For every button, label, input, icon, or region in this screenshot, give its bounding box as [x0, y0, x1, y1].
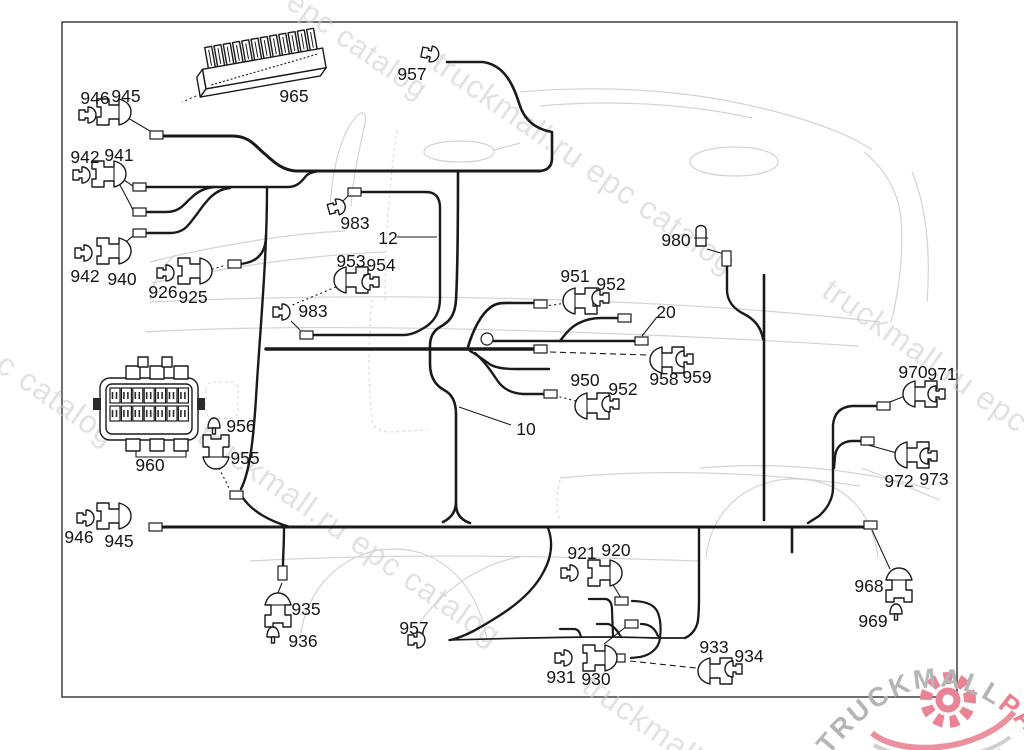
- part-callout: 957: [397, 64, 426, 84]
- part-callout: 942: [70, 266, 99, 286]
- part-callout: 958: [649, 369, 678, 389]
- part-callout: 951: [560, 266, 589, 286]
- part-callout: 980: [661, 230, 690, 250]
- harness-wires: [146, 62, 879, 658]
- connector-940: [97, 238, 131, 264]
- part-callout: 926: [148, 282, 177, 302]
- part-callout: 921: [567, 543, 596, 563]
- connector-935: [265, 593, 291, 627]
- part-callout: 10: [516, 419, 536, 439]
- part-callout: 956: [226, 416, 255, 436]
- connector-920: [588, 560, 622, 586]
- grommet-936-icon: [267, 627, 279, 643]
- part-callout: 946: [80, 88, 109, 108]
- connector-959-icon: [676, 351, 693, 367]
- connector-930: [583, 645, 617, 671]
- part-callout: 971: [927, 364, 956, 384]
- part-callout: 952: [596, 274, 625, 294]
- part-callout: 959: [682, 367, 711, 387]
- callouts-layer: 9469459429419429409269259659579831295395…: [64, 64, 956, 689]
- connector-925: [178, 258, 212, 284]
- part-callout: 983: [298, 301, 327, 321]
- part-callout: 969: [858, 611, 887, 631]
- grommet-969-icon: [890, 604, 902, 620]
- part-callout: 970: [898, 362, 927, 382]
- connector-983-bottom-icon: [273, 304, 290, 320]
- part-callout: 950: [570, 370, 599, 390]
- connector-968: [886, 568, 912, 602]
- part-callout: 953: [336, 251, 365, 271]
- part-callout: 960: [135, 455, 164, 475]
- connector-942-icon: [73, 167, 90, 183]
- connector-954-icon: [362, 274, 379, 290]
- part-callout: 20: [656, 302, 676, 322]
- part-callout: 954: [366, 255, 395, 275]
- part-callout: 930: [581, 669, 610, 689]
- part-callout: 968: [854, 576, 883, 596]
- connector-931-icon: [555, 650, 572, 666]
- connector-946-icon: [79, 107, 96, 123]
- part-callout: 933: [699, 637, 728, 657]
- wiring-diagram: truckmall.ru epc catalogtruckmall.ru epc…: [0, 0, 1024, 750]
- part-callout: 12: [378, 228, 397, 248]
- part-callout: 952: [608, 379, 637, 399]
- part-callout: 935: [291, 599, 320, 619]
- connector-946b-icon: [77, 510, 94, 526]
- part-callout: 957: [399, 618, 428, 638]
- part-callout: 955: [230, 448, 259, 468]
- connector-973-icon: [920, 448, 937, 464]
- leader-lines: [115, 90, 905, 668]
- part-callout: 973: [919, 469, 948, 489]
- connector-971-icon: [928, 386, 945, 402]
- diagram-page: truckmall.ru epc catalogtruckmall.ru epc…: [0, 0, 1024, 750]
- connector-980: [694, 226, 708, 247]
- part-callout: 945: [104, 531, 133, 551]
- part-callout: 983: [340, 213, 369, 233]
- wire-terminals: [133, 131, 890, 662]
- connector-921-icon: [561, 565, 578, 581]
- part-callout: 946: [64, 527, 93, 547]
- part-callout: 942: [70, 147, 99, 167]
- harness-clip-ring: [481, 333, 493, 345]
- part-callout: 940: [107, 269, 136, 289]
- connector-945b: [97, 503, 131, 529]
- part-callout: 934: [734, 646, 763, 666]
- part-callout: 941: [104, 145, 133, 165]
- part-callout: 945: [111, 86, 140, 106]
- part-callout: 972: [884, 471, 913, 491]
- part-callout: 965: [279, 86, 308, 106]
- part-callout: 936: [288, 631, 317, 651]
- connector-942b-icon: [75, 245, 92, 261]
- connector-symbols: [73, 44, 945, 684]
- part-callout: 920: [601, 540, 630, 560]
- connector-926-icon: [157, 265, 174, 281]
- part-callout: 925: [178, 287, 207, 307]
- part-callout: 931: [546, 667, 575, 687]
